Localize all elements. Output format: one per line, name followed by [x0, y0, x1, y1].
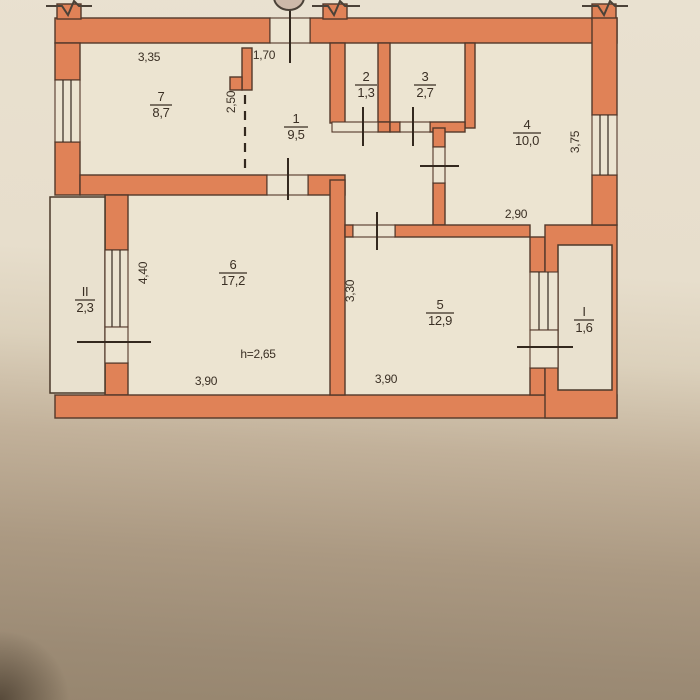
- dim-width-room7: 3,35: [138, 50, 161, 64]
- wall-hall-room4-lower: [433, 183, 445, 225]
- wall-room7-hall-stub: [230, 77, 242, 90]
- window-room6-balcony: [105, 250, 128, 327]
- dim-ceiling-height: h=2,65: [240, 347, 276, 361]
- balcony-ii-number: II: [82, 284, 89, 299]
- door-room2: [332, 122, 378, 132]
- dim-room4-height: 3,75: [568, 130, 582, 153]
- wall-room3-south-left: [390, 122, 400, 132]
- wall-left-upper: [55, 43, 80, 80]
- dim-room4-width: 2,90: [505, 207, 528, 221]
- room-3-number: 3: [422, 69, 429, 84]
- room-3-area: 2,7: [416, 85, 433, 100]
- dim-room5-width: 3,90: [375, 372, 398, 386]
- door-room6-balcony: [105, 327, 128, 363]
- room-2-area: 1,3: [357, 85, 374, 100]
- room-1-area: 9,5: [287, 127, 304, 142]
- wall-right-upper: [592, 18, 617, 115]
- room-4-number: 4: [524, 117, 531, 132]
- balcony-i-number: I: [582, 304, 585, 319]
- room-4-area: 10,0: [515, 133, 539, 148]
- wall-room5-east-upper: [530, 237, 545, 272]
- room-1-number: 1: [293, 111, 300, 126]
- floor-plan-drawing: 7 8,7 1 9,5 2 1,3 3 2,7 4 10,0 6 17,2: [0, 0, 700, 700]
- balcony-ii-area: 2,3: [76, 300, 93, 315]
- wall-right-mid: [592, 175, 617, 225]
- dim-room6-width: 3,90: [195, 374, 218, 388]
- room-5-area: 12,9: [428, 313, 452, 328]
- wall-room5-north-right: [395, 225, 530, 237]
- balcony-ii-floor: [50, 197, 105, 393]
- window-room5-balcony: [530, 272, 558, 330]
- wall-room2-room3: [378, 43, 390, 122]
- window-room7-west: [55, 80, 80, 142]
- wall-room7-hall: [242, 48, 252, 90]
- room-5-number: 5: [437, 297, 444, 312]
- wall-left-lower: [55, 142, 80, 195]
- wall-room7-room6-left: [80, 175, 267, 195]
- room-6-number: 6: [230, 257, 237, 272]
- dim-room6-height: 4,40: [136, 261, 150, 284]
- wall-room6-west-lower: [105, 363, 128, 395]
- entrance-axis-circle: [274, 0, 304, 10]
- dim-hall-depth: 2,50: [224, 90, 238, 113]
- dim-entry: 1,70: [253, 48, 276, 62]
- dim-room5-height: 3,30: [343, 279, 357, 302]
- window-room4-east: [592, 115, 617, 175]
- room-2-number: 2: [363, 69, 370, 84]
- room-7-number: 7: [158, 89, 165, 104]
- room-7-area: 8,7: [152, 105, 169, 120]
- wall-top-right: [310, 18, 617, 43]
- door-room3: [400, 122, 430, 132]
- wall-hall-room2: [330, 43, 345, 123]
- wall-room6-west-upper: [105, 195, 128, 250]
- door-room5-balcony: [530, 330, 558, 368]
- wall-room2-south-stub: [378, 122, 390, 132]
- floor-plan-photo: 7 8,7 1 9,5 2 1,3 3 2,7 4 10,0 6 17,2: [0, 0, 700, 700]
- wall-top-left: [55, 18, 270, 43]
- wall-room5-north-left: [345, 225, 353, 237]
- wall-bottom: [55, 395, 617, 418]
- room-6-area: 17,2: [221, 273, 245, 288]
- wall-room5-east-lower: [530, 368, 545, 395]
- balcony-i-area: 1,6: [575, 320, 592, 335]
- door-room5: [353, 225, 395, 237]
- wall-room3-room4: [465, 43, 475, 128]
- wall-hall-room4-upper: [433, 128, 445, 147]
